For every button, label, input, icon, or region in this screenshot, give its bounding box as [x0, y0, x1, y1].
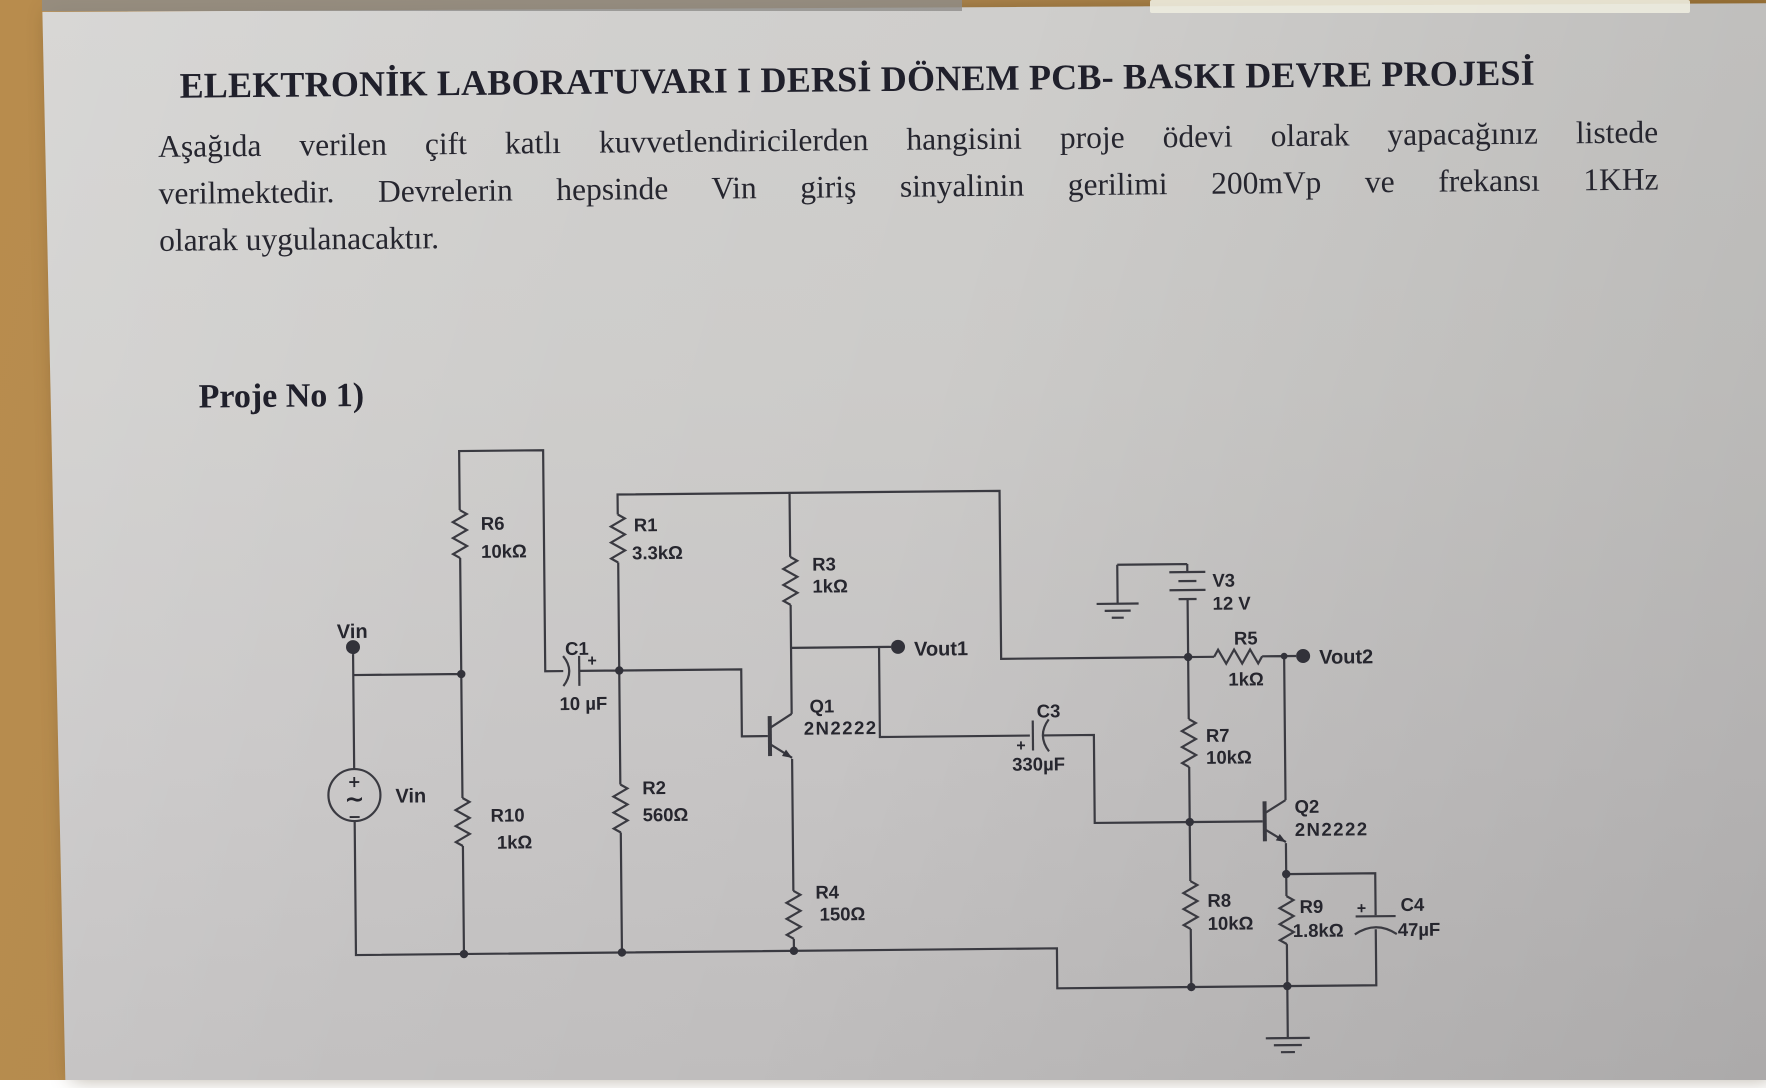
- resistor-zigzag: [613, 784, 627, 832]
- component-value: 1.8kΩ: [1293, 920, 1344, 941]
- component-ref: R3: [812, 553, 836, 574]
- component-value: 150Ω: [819, 903, 865, 924]
- terminal-vout1: Vout1: [891, 638, 968, 661]
- resistor-zigzag: [1183, 881, 1197, 929]
- ground-icon: [1266, 1038, 1310, 1052]
- transistor-Q1: Q1 2N2222: [769, 695, 877, 758]
- capacitor-C4: + C4 47µF: [1354, 894, 1440, 941]
- component-ref: C3: [1037, 700, 1061, 721]
- polarity-plus-sign: +: [587, 653, 597, 670]
- transistor-Q2: Q2 2N2222: [1264, 795, 1368, 842]
- emitter-arrow: [782, 750, 792, 758]
- polarity-plus-sign: +: [1016, 738, 1026, 755]
- resistor-R9: R9 1.8kΩ: [1279, 896, 1343, 945]
- resistor-zigzag: [783, 557, 797, 605]
- component-ref: R7: [1206, 725, 1230, 746]
- component-value: 2N2222: [1295, 818, 1369, 840]
- terminal-dot: [891, 640, 905, 654]
- component-ref: R9: [1299, 896, 1323, 917]
- component-ref: R1: [634, 514, 658, 535]
- component-value: 10kΩ: [1206, 746, 1252, 767]
- resistor-R7: R7 10kΩ: [1182, 718, 1252, 768]
- battery-V3: V3 12 V: [1169, 569, 1251, 614]
- component-value: 1kΩ: [497, 831, 533, 852]
- component-value: 330µF: [1012, 753, 1065, 775]
- resistor-R8: R8 10kΩ: [1183, 880, 1253, 934]
- capacitor-curved-plate: [563, 656, 569, 686]
- component-ref: C4: [1400, 894, 1425, 915]
- component-value: 2N2222: [804, 717, 878, 739]
- component-value: 12 V: [1213, 592, 1252, 613]
- document-content: ELEKTRONİK LABORATUVARI I DERSİ DÖNEM PC…: [0, 0, 1766, 1088]
- source-minus-sign: −: [348, 807, 362, 826]
- resistor-R4: R4 150Ω: [786, 881, 865, 939]
- component-ref: Q1: [809, 695, 834, 716]
- terminal-label: Vin: [337, 621, 368, 643]
- component-value: 1kΩ: [1228, 668, 1264, 689]
- component-value: 10kΩ: [1208, 912, 1254, 933]
- transistor-collector-lead: [770, 714, 792, 728]
- transistor-collector-lead: [1265, 800, 1286, 813]
- resistor-R10: R10 1kΩ: [455, 797, 532, 853]
- component-ref: R6: [481, 513, 505, 534]
- resistor-zigzag: [453, 510, 467, 558]
- source-label: Vin: [395, 785, 426, 807]
- polarity-plus-sign: +: [1357, 900, 1367, 917]
- component-ref: V3: [1212, 570, 1235, 591]
- resistor-zigzag: [786, 891, 800, 939]
- photographed-document-scene: ELEKTRONİK LABORATUVARI I DERSİ DÖNEM PC…: [0, 0, 1766, 1080]
- resistor-R6: R6 10kΩ: [453, 509, 527, 562]
- terminal-dot: [1296, 649, 1310, 663]
- terminal-label: Vout1: [914, 638, 968, 661]
- component-value: 560Ω: [643, 804, 689, 825]
- component-ref: C1: [565, 638, 589, 659]
- resistor-zigzag: [1182, 719, 1196, 767]
- resistor-R1: R1 3.3kΩ: [611, 514, 683, 564]
- component-ref: Q2: [1294, 796, 1319, 817]
- terminal-vin: Vin: [337, 621, 368, 654]
- component-ref: R4: [815, 881, 840, 902]
- component-value: 10 µF: [559, 693, 607, 714]
- emitter-arrow: [1276, 834, 1286, 842]
- resistor-R5: R5 1kΩ: [1214, 627, 1264, 689]
- ac-source-vin: + ~ − Vin: [328, 768, 426, 826]
- terminal-label: Vout2: [1319, 646, 1373, 669]
- component-value: 1kΩ: [812, 575, 848, 596]
- capacitor-C1: + C1 10 µF: [559, 638, 607, 714]
- component-value: 3.3kΩ: [632, 542, 683, 563]
- resistor-zigzag: [1214, 649, 1262, 663]
- component-value: 47µF: [1398, 919, 1441, 940]
- component-value: 10kΩ: [481, 540, 527, 561]
- resistor-zigzag: [611, 514, 625, 562]
- resistor-zigzag: [455, 798, 469, 846]
- resistor-R2: R2 560Ω: [613, 777, 688, 833]
- terminal-vout2: Vout2: [1296, 646, 1373, 669]
- component-ref: R2: [642, 777, 666, 798]
- component-ref: R8: [1207, 890, 1231, 911]
- capacitor-C3: + C3 330µF: [1012, 700, 1066, 775]
- ground-icon: [1097, 604, 1139, 618]
- resistor-R3: R3 1kΩ: [783, 553, 848, 605]
- circuit-schematic: Vin + ~ − Vin R6 10kΩ R1 3.3kΩ: [0, 0, 1766, 1088]
- component-ref: R10: [491, 804, 525, 825]
- component-ref: R5: [1234, 627, 1258, 648]
